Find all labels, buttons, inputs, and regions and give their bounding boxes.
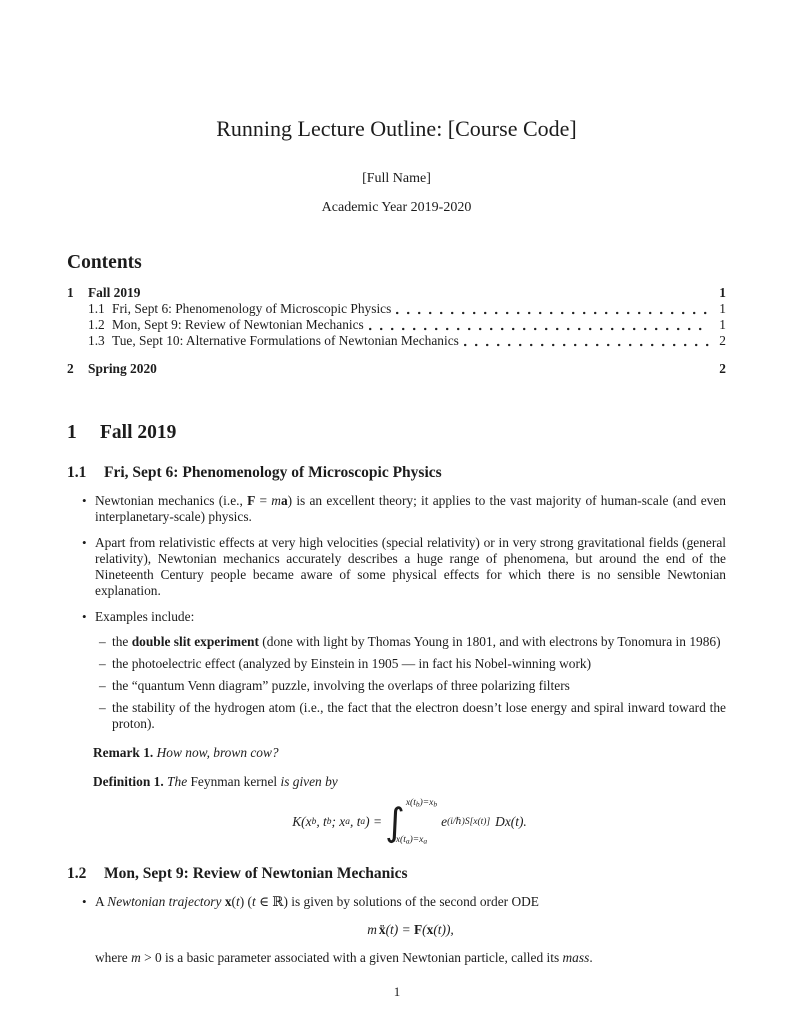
toc-entry-label: Fall 2019 bbox=[88, 285, 140, 301]
bold-term: double slit experiment bbox=[132, 634, 259, 649]
integral-group: ∫ x(tb)=xb x(ta)=xa bbox=[385, 798, 436, 846]
math-run: ) = bbox=[365, 814, 382, 830]
math-run: , t bbox=[316, 814, 326, 830]
sub-bullet-item: the “quantum Venn diagram” puzzle, invol… bbox=[112, 678, 726, 694]
bullet-item: Newtonian mechanics (i.e., F = ma) is an… bbox=[95, 493, 726, 525]
sub-bullet-list: the double slit experiment (done with li… bbox=[95, 634, 726, 732]
remark-label: Remark 1. bbox=[93, 745, 153, 760]
definition-text: is given by bbox=[277, 774, 338, 789]
toc-entry-1-3[interactable]: 1.3 Tue, Sept 10: Alternative Formulatio… bbox=[67, 333, 726, 349]
math-bold-F: F bbox=[414, 922, 422, 937]
math-subscript: a bbox=[423, 836, 427, 845]
definition-label: Definition 1. bbox=[93, 774, 164, 789]
remark-block: Remark 1. How now, brown cow? bbox=[93, 745, 726, 761]
text-run: = bbox=[255, 493, 271, 508]
equation-newton-ode: mẍ(t) = F(x(t)), bbox=[95, 922, 726, 938]
definition-text: The bbox=[167, 774, 190, 789]
equation-feynman-kernel: K(xb, tb; xa, ta) = ∫ x(tb)=xb x(ta)=xa … bbox=[93, 798, 726, 846]
integral-upper-limit: x(tb)=xb bbox=[406, 798, 437, 810]
toc-entry-1-1[interactable]: 1.1 Fri, Sept 6: Phenomenology of Micros… bbox=[67, 301, 726, 317]
math-var-m: m bbox=[131, 950, 141, 965]
bullet-item: Apart from relativistic effects at very … bbox=[95, 535, 726, 599]
bullet-list-1-1: Newtonian mechanics (i.e., F = ma) is an… bbox=[67, 493, 726, 732]
section-number: 1 bbox=[67, 421, 86, 444]
toc-entry-label: Spring 2020 bbox=[88, 361, 157, 377]
page-number: 1 bbox=[0, 984, 794, 1000]
math-run: x(t). bbox=[505, 814, 527, 830]
bullet-item: A Newtonian trajectory x(t) (t ∈ ℝ) is g… bbox=[95, 894, 726, 966]
where-clause: where m > 0 is a basic parameter associa… bbox=[95, 950, 726, 966]
math-var-m: m bbox=[271, 493, 281, 508]
integral-limits: x(tb)=xb x(ta)=xa bbox=[405, 798, 436, 846]
text-run: the photoelectric effect (analyzed by Ei… bbox=[112, 656, 591, 671]
toc-entry-spring-2020[interactable]: 2 Spring 2020 2 bbox=[67, 361, 726, 377]
document-page: Running Lecture Outline: [Course Code] [… bbox=[0, 0, 794, 1028]
toc-dot-leader bbox=[396, 311, 709, 315]
text-run: A bbox=[95, 894, 107, 909]
section-title: Fall 2019 bbox=[100, 422, 176, 443]
subsection-heading-1-2: 1.2Mon, Sept 9: Review of Newtonian Mech… bbox=[67, 864, 726, 883]
text-run: > 0 is a basic parameter associated with… bbox=[141, 950, 563, 965]
math-bold-x: x bbox=[225, 894, 232, 909]
sub-bullet-item: the double slit experiment (done with li… bbox=[112, 634, 726, 650]
emphasized-term: Newtonian trajectory bbox=[107, 894, 225, 909]
math-run: K(x bbox=[292, 814, 311, 830]
math-run: (t)), bbox=[433, 922, 453, 937]
remark-text: How now, brown cow? bbox=[157, 745, 279, 760]
math-subscript: b bbox=[433, 800, 437, 809]
definition-term: Feynman kernel bbox=[190, 774, 277, 789]
toc-dot-leader bbox=[464, 343, 709, 347]
integral-lower-limit: x(ta)=xa bbox=[396, 835, 427, 847]
sub-bullet-item: the photoelectric effect (analyzed by Ei… bbox=[112, 656, 726, 672]
section-heading-fall-2019: 1Fall 2019 bbox=[67, 421, 726, 444]
math-run: (t) = bbox=[386, 922, 414, 937]
toc-entry-1-2[interactable]: 1.2 Mon, Sept 9: Review of Newtonian Mec… bbox=[67, 317, 726, 333]
toc-entry-page: 1 bbox=[714, 301, 726, 317]
contents-heading: Contents bbox=[67, 255, 726, 271]
math-var-m: m bbox=[367, 922, 377, 937]
emphasized-term: mass bbox=[563, 950, 590, 965]
subsection-heading-1-1: 1.1Fri, Sept 6: Phenomenology of Microsc… bbox=[67, 463, 726, 482]
definition-block: Definition 1. The Feynman kernel is give… bbox=[93, 774, 726, 790]
subsection-number: 1.2 bbox=[67, 864, 92, 883]
document-date: Academic Year 2019-2020 bbox=[67, 200, 726, 216]
math-run: ; x bbox=[331, 814, 345, 830]
math-run: , t bbox=[350, 814, 360, 830]
text-run: the “quantum Venn diagram” puzzle, invol… bbox=[112, 678, 570, 693]
toc-entry-page: 1 bbox=[714, 285, 726, 301]
text-run: ) ( bbox=[240, 894, 252, 909]
toc-entry-number: 1.1 bbox=[88, 301, 112, 317]
sub-bullet-item: the stability of the hydrogen atom (i.e.… bbox=[112, 700, 726, 732]
toc-entry-fall-2019[interactable]: 1 Fall 2019 1 bbox=[67, 285, 726, 301]
toc-entry-number: 1.3 bbox=[88, 333, 112, 349]
toc-entry-page: 2 bbox=[714, 333, 726, 349]
math-bold-a: a bbox=[281, 493, 288, 508]
document-title: Running Lecture Outline: [Course Code] bbox=[67, 116, 726, 142]
text-run: Apart from relativistic effects at very … bbox=[95, 535, 726, 598]
text-run: Examples include: bbox=[95, 609, 194, 624]
text-run: the bbox=[112, 634, 132, 649]
toc-entry-number: 1 bbox=[67, 285, 88, 301]
subsection-title: Mon, Sept 9: Review of Newtonian Mechani… bbox=[104, 865, 408, 882]
document-author: [Full Name] bbox=[67, 171, 726, 187]
toc-entry-label: Mon, Sept 9: Review of Newtonian Mechani… bbox=[112, 317, 364, 333]
toc-entry-number: 2 bbox=[67, 361, 88, 377]
text-run: the stability of the hydrogen atom (i.e.… bbox=[112, 700, 726, 731]
bullet-item: Examples include: the double slit experi… bbox=[95, 609, 726, 732]
table-of-contents: 1 Fall 2019 1 1.1 Fri, Sept 6: Phenomeno… bbox=[67, 285, 726, 376]
toc-entry-label: Fri, Sept 6: Phenomenology of Microscopi… bbox=[112, 301, 391, 317]
toc-entry-label: Tue, Sept 10: Alternative Formulations o… bbox=[112, 333, 459, 349]
math-bold-x-ddot: ẍ bbox=[379, 922, 386, 937]
toc-entry-page: 2 bbox=[714, 361, 726, 377]
path-integral-measure: D bbox=[495, 814, 505, 830]
toc-dot-leader bbox=[369, 327, 709, 331]
subsection-title: Fri, Sept 6: Phenomenology of Microscopi… bbox=[104, 464, 442, 481]
text-run: where bbox=[95, 950, 131, 965]
text-run: ∈ ℝ) is given by solutions of the second… bbox=[256, 894, 539, 909]
toc-entry-number: 1.2 bbox=[88, 317, 112, 333]
bullet-list-1-2: A Newtonian trajectory x(t) (t ∈ ℝ) is g… bbox=[67, 894, 726, 966]
subsection-number: 1.1 bbox=[67, 463, 92, 482]
text-run: Newtonian mechanics (i.e., bbox=[95, 493, 247, 508]
text-run: . bbox=[589, 950, 592, 965]
title-block: Running Lecture Outline: [Course Code] [… bbox=[67, 0, 726, 216]
toc-entry-page: 1 bbox=[714, 317, 726, 333]
text-run: (done with light by Thomas Young in 1801… bbox=[259, 634, 721, 649]
